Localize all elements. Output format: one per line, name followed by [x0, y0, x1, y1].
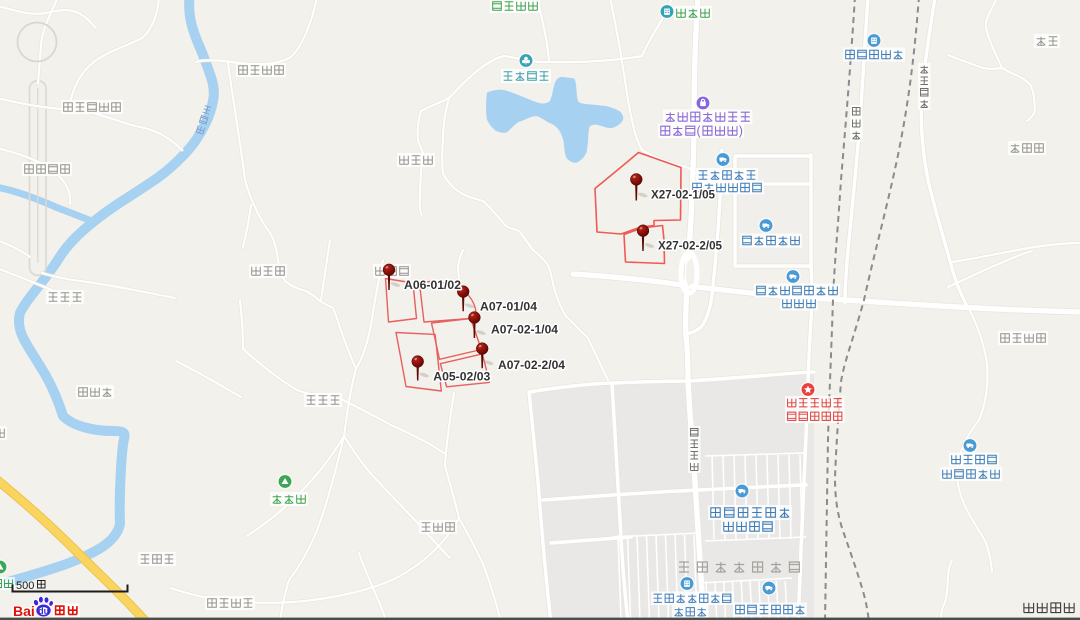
- svg-text:A06-01/02: A06-01/02: [404, 278, 461, 292]
- svg-text:A07-02-2/04: A07-02-2/04: [498, 358, 565, 372]
- svg-text:): ): [739, 124, 743, 138]
- svg-text:A05-02/03: A05-02/03: [433, 370, 490, 384]
- svg-text:A07-02-1/04: A07-02-1/04: [491, 323, 558, 337]
- svg-text:du: du: [38, 606, 49, 616]
- svg-text:500: 500: [16, 580, 34, 592]
- svg-text:A07-01/04: A07-01/04: [480, 300, 537, 314]
- svg-text:X27-02-1/05: X27-02-1/05: [651, 188, 715, 202]
- svg-text:X27-02-2/05: X27-02-2/05: [658, 239, 722, 253]
- svg-text:Bai: Bai: [13, 603, 35, 619]
